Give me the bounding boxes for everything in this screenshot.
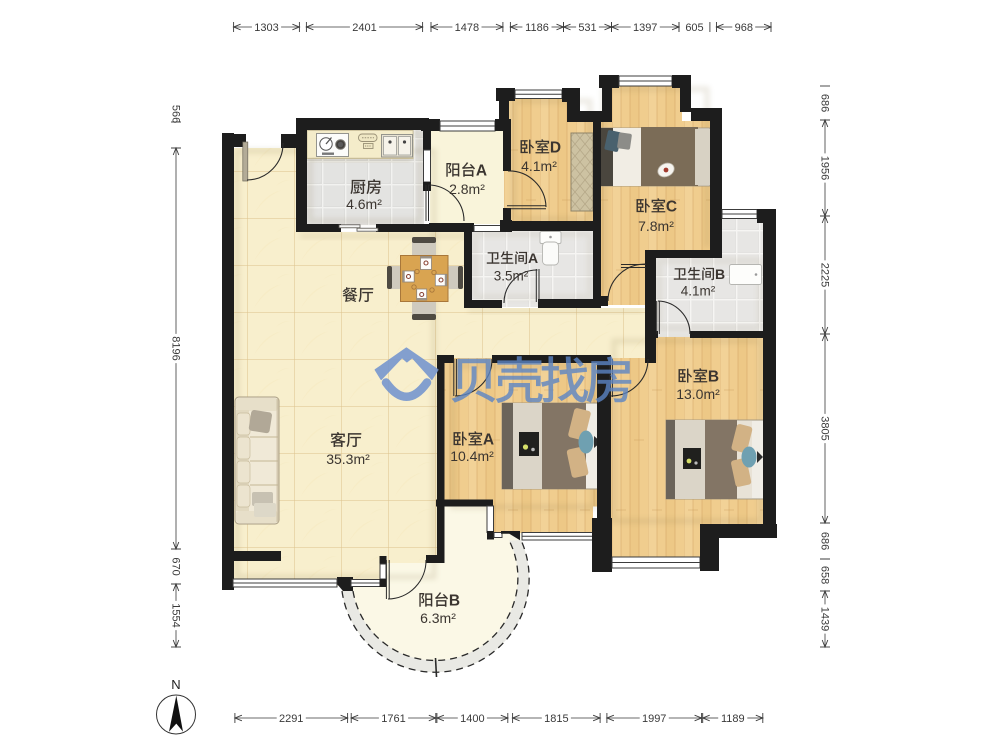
svg-text:605: 605 bbox=[685, 22, 703, 34]
svg-text:1997: 1997 bbox=[642, 713, 666, 725]
svg-text:10.4m²: 10.4m² bbox=[450, 448, 494, 464]
svg-text:4.1m²: 4.1m² bbox=[681, 284, 716, 299]
svg-text:1554: 1554 bbox=[170, 603, 182, 627]
svg-text:670: 670 bbox=[170, 557, 182, 575]
svg-text:4.6m²: 4.6m² bbox=[346, 196, 382, 212]
svg-text:6.3m²: 6.3m² bbox=[420, 610, 456, 626]
svg-text:A: A bbox=[528, 250, 538, 266]
svg-text:686: 686 bbox=[819, 532, 831, 550]
svg-text:1761: 1761 bbox=[381, 713, 405, 725]
svg-text:13.0m²: 13.0m² bbox=[676, 386, 720, 402]
svg-text:8196: 8196 bbox=[170, 336, 182, 360]
svg-text:2401: 2401 bbox=[352, 22, 376, 34]
svg-text:1303: 1303 bbox=[254, 22, 278, 34]
svg-text:B: B bbox=[708, 369, 719, 386]
svg-text:1956: 1956 bbox=[819, 156, 831, 180]
svg-text:658: 658 bbox=[819, 566, 831, 584]
svg-text:968: 968 bbox=[735, 22, 753, 34]
svg-text:1186: 1186 bbox=[525, 22, 549, 34]
svg-text:1397: 1397 bbox=[633, 22, 657, 34]
svg-text:D: D bbox=[550, 140, 561, 157]
svg-text:3.5m²: 3.5m² bbox=[494, 269, 529, 284]
svg-text:B: B bbox=[449, 593, 460, 610]
svg-text:1478: 1478 bbox=[455, 22, 479, 34]
svg-text:3805: 3805 bbox=[819, 416, 831, 440]
svg-text:686: 686 bbox=[819, 94, 831, 112]
svg-text:A: A bbox=[476, 163, 487, 180]
svg-text:2225: 2225 bbox=[819, 263, 831, 287]
svg-text:566: 566 bbox=[170, 105, 182, 123]
svg-text:1439: 1439 bbox=[819, 607, 831, 631]
svg-text:N: N bbox=[171, 677, 180, 692]
svg-text:A: A bbox=[483, 432, 494, 449]
svg-text:35.3m²: 35.3m² bbox=[326, 451, 370, 467]
svg-text:1815: 1815 bbox=[544, 713, 568, 725]
svg-text:1189: 1189 bbox=[721, 713, 745, 725]
svg-text:4.1m²: 4.1m² bbox=[521, 158, 557, 174]
svg-text:2291: 2291 bbox=[279, 713, 303, 725]
svg-text:2.8m²: 2.8m² bbox=[449, 181, 485, 197]
svg-text:B: B bbox=[715, 266, 725, 282]
svg-text:7.8m²: 7.8m² bbox=[638, 218, 674, 234]
svg-text:C: C bbox=[666, 199, 677, 216]
svg-text:1400: 1400 bbox=[460, 713, 484, 725]
svg-text:531: 531 bbox=[578, 22, 596, 34]
